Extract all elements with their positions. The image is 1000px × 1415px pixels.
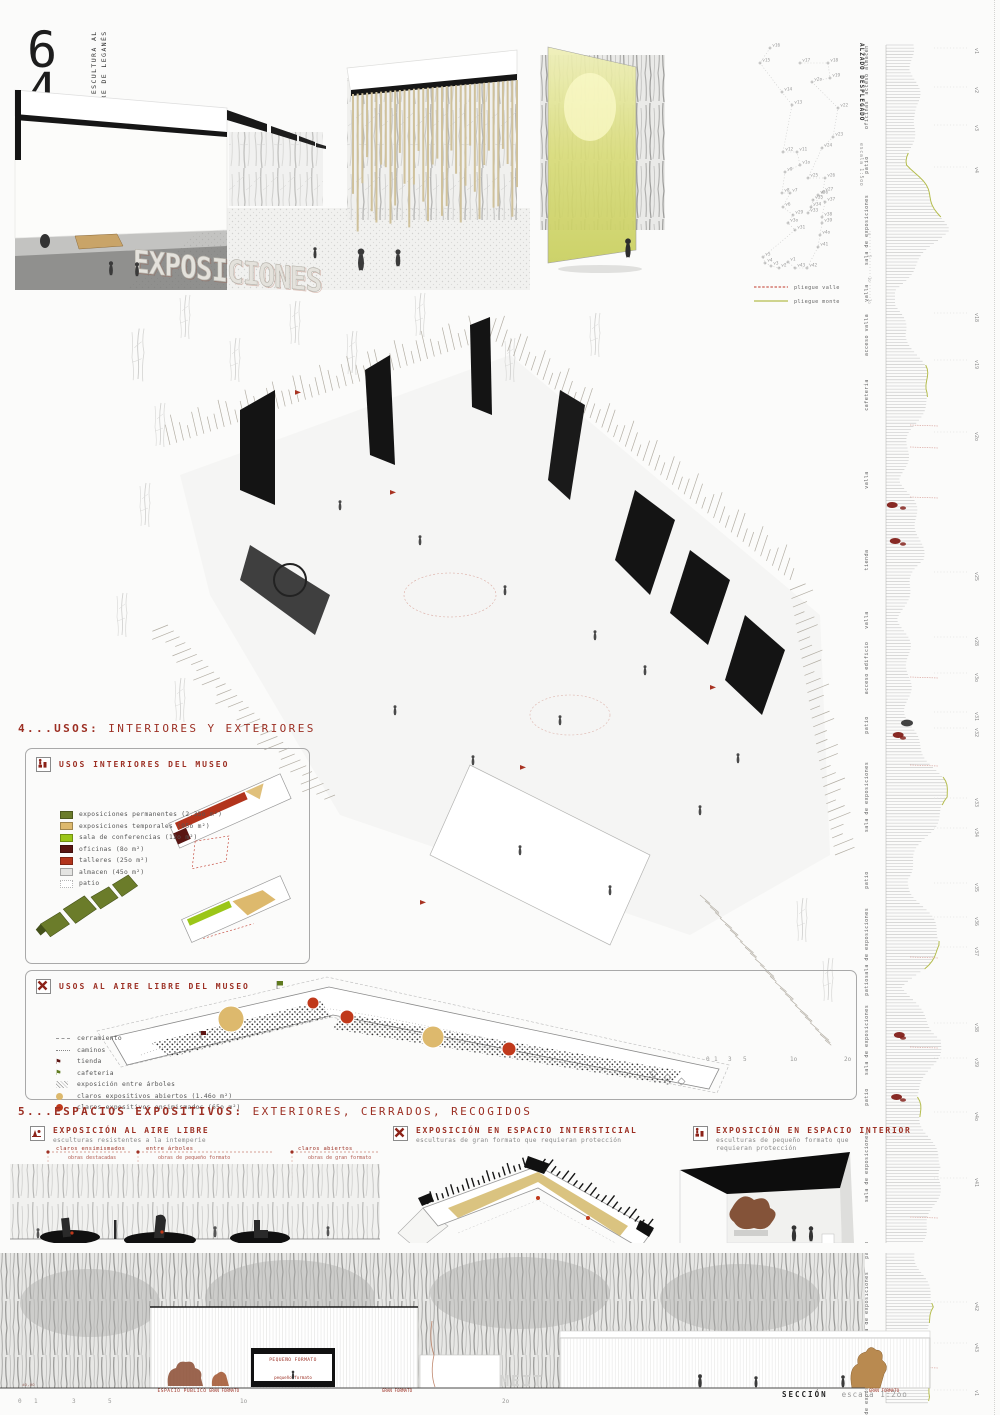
sub3-title: EXPOSICIÓN EN ESPACIO INTERIOR <box>716 1126 912 1135</box>
scale-number: 2o <box>502 1398 509 1405</box>
sculpture <box>40 234 50 248</box>
portal-slab <box>227 110 267 132</box>
vertex-label: v2 <box>781 262 787 268</box>
interior-uses-box: USOS INTERIORES DEL MUSEO exposiciones p… <box>25 748 310 964</box>
vertex-ref-label: v2 <box>973 87 979 93</box>
legend-label: tienda <box>77 1058 102 1065</box>
section4-heading-rest: INTERIORES Y EXTERIORES <box>108 722 316 735</box>
legend-label: cerramiento <box>77 1035 122 1042</box>
elevation-mark: ±o,oo <box>22 1382 35 1387</box>
claro-abierto <box>422 1026 444 1048</box>
color-chip <box>60 880 73 888</box>
elevation-segment-label: patio <box>864 871 870 889</box>
vertex-ref-label: v4 <box>973 167 979 173</box>
color-chip <box>60 845 73 853</box>
graphic-scale-label: 1o <box>867 277 872 282</box>
vertex-ref-label: v3o <box>973 673 979 682</box>
legend-label: exposición entre árboles <box>77 1081 175 1088</box>
vertex-label: v41 <box>820 241 828 247</box>
claro-abierto <box>218 1006 244 1032</box>
legend-item: exposiciones permanentes (2.35o m²) <box>60 809 222 821</box>
annotation-title: entre árboles <box>146 1145 193 1152</box>
scale-number: 5 <box>108 1398 112 1405</box>
vertex-ref-label: v4o <box>973 1112 979 1121</box>
section-caption-label: SECCIÓN <box>782 1390 828 1399</box>
elevation-segment-label: acceso almacén <box>863 45 870 94</box>
person-figure <box>395 249 400 266</box>
vertex-ref-label: v34 <box>973 828 979 837</box>
person-figure <box>135 262 139 276</box>
fold-vertex-diagram: v16v15v14v13v12v11v1ov9v8v7v6v29v3ov31v5… <box>748 35 853 315</box>
vertex-label: v1 <box>790 256 796 262</box>
person-figure <box>841 1375 845 1387</box>
legend-label: claros expositivos abiertos (1.46o m²) <box>77 1093 232 1100</box>
bottom-section-elevation: MEIT ±o,oo ESPACIO PÚBLICO GRAN FORMATO … <box>0 1243 1000 1395</box>
sub1-title: EXPOSICIÓN AL AIRE LIBRE <box>53 1126 209 1135</box>
vertex-ref-label: v32 <box>973 728 979 737</box>
person-figure <box>313 247 316 258</box>
open-air-uses-header: USOS AL AIRE LIBRE DEL MUSEO <box>36 979 250 994</box>
legend-item: ⚑cafeteria <box>56 1068 241 1080</box>
bottom-scalebar: 0 1 3 5 1o 2o <box>18 1398 538 1408</box>
legend-label: cafeteria <box>77 1070 114 1077</box>
vertex-label: v22 <box>840 102 848 108</box>
vertex-label: v3 <box>773 260 779 266</box>
color-chip <box>60 857 73 865</box>
vertex-label: v25 <box>810 172 818 178</box>
interior-uses-legend: exposiciones permanentes (2.35o m²) expo… <box>60 809 222 890</box>
vertex-ref-label: v37 <box>973 947 979 956</box>
scale-number: 1o <box>240 1398 247 1405</box>
legend-label: patio <box>79 880 99 887</box>
elevation-segment-label: acceso edificio <box>864 642 870 695</box>
crop-mark-line <box>994 0 995 1415</box>
open-air-uses-box: USOS AL AIRE LIBRE DEL MUSEO cerramiento… <box>25 970 857 1100</box>
elevation-segment-label: oficinas <box>864 101 870 129</box>
legend-label: talleres (25o m²) <box>79 857 149 864</box>
vertex-label: v34 <box>813 201 821 207</box>
vertex-label: v9 <box>787 166 793 172</box>
person-figure <box>519 845 522 855</box>
legend-label: oficinas (8o m²) <box>79 846 144 853</box>
vertex-label: v31 <box>797 224 805 230</box>
color-chip <box>60 811 73 819</box>
claro-ensimismado <box>340 1010 354 1024</box>
legend-label: almacen (45o m²) <box>79 869 144 876</box>
elevation-segment-label: valla <box>864 611 870 629</box>
vertex-ref-label: v2o <box>973 432 979 441</box>
person-figure <box>472 755 475 765</box>
section5-heading: 5...ESPACIOS EXPOSITIVOS: EXTERIORES, CE… <box>18 1105 532 1118</box>
pedestal <box>734 1230 768 1236</box>
elevation-segment-label: valla <box>864 284 870 302</box>
person-figure <box>625 238 631 257</box>
legend-item: ⚑tienda <box>56 1056 241 1068</box>
vertex-label: v35 <box>815 194 823 200</box>
pequeno-formato-label: PEQUEÑO FORMATO <box>269 1356 317 1363</box>
person-figure <box>754 1376 757 1387</box>
signage-text: MEIT <box>500 1372 544 1390</box>
scale-number: 0 <box>18 1398 22 1405</box>
gallery-box-frame <box>251 1348 335 1387</box>
section5-heading-rest: EXTERIORES, CERRADOS, RECOGIDOS <box>253 1105 533 1118</box>
vertex-label: v37 <box>827 196 835 202</box>
vertex-label: v6 <box>785 201 791 207</box>
trees-pictogram-icon <box>30 1126 45 1141</box>
elevation-labels: acceso almacénoficinaspatiosala de expos… <box>863 45 979 1415</box>
legend-item: claros expositivos abiertos (1.46o m²) <box>56 1091 241 1103</box>
scale-number: 3 <box>72 1398 76 1405</box>
elevation-segment-label: sala de exposiciones <box>864 195 870 265</box>
person-figure <box>594 630 597 640</box>
legend-item: sala de conferencias (12o m²) <box>60 832 222 844</box>
person-figure <box>213 1226 216 1237</box>
cafeteria-flag-icon: ⚑ <box>56 1069 61 1077</box>
glass-highlight <box>564 73 616 141</box>
person-figure <box>698 1374 702 1387</box>
legend-item: exposiciones temporales (95o m²) <box>60 821 222 833</box>
vertex-label: v5 <box>765 251 771 257</box>
vertex-label: v15 <box>762 57 770 63</box>
section-caption-scale: escala 1:2oo <box>842 1390 908 1399</box>
vertex-label: v4 <box>767 257 773 263</box>
claro-ensimismado <box>502 1042 516 1056</box>
vertex-ref-label: v19 <box>973 360 979 369</box>
vertex-label: v39 <box>824 217 832 223</box>
elevation-segment-label: patio <box>864 716 870 734</box>
glass-pane-rendering <box>540 45 665 290</box>
vertex-ref-label: v25 <box>973 572 979 581</box>
annotation-sub: obras de pequeño formato <box>158 1155 230 1161</box>
vertex-ref-label: v3 <box>973 125 979 131</box>
canopy-edge <box>15 90 21 160</box>
legend-item: oficinas (8o m²) <box>60 844 222 856</box>
tienda-flag-icon: ⚑ <box>56 1058 61 1066</box>
vertex-label: v38 <box>824 211 832 217</box>
claro-abierto-icon <box>56 1093 63 1100</box>
person-figure <box>809 1226 814 1241</box>
red-marker <box>586 1216 590 1220</box>
person-figure <box>504 585 507 595</box>
vertex-ref-label: v38 <box>973 1023 979 1032</box>
section4-heading: 4...USOS: INTERIORES Y EXTERIORES <box>18 722 316 735</box>
red-marker <box>160 1230 163 1233</box>
elevation-segment-label: acceso valla <box>864 314 870 356</box>
vertex-label: v13 <box>794 99 802 105</box>
elevation-segment-label: sala de exposiciones <box>864 908 870 978</box>
vertex-label: v2o <box>814 76 822 82</box>
open-air-uses-title: USOS AL AIRE LIBRE DEL MUSEO <box>59 982 250 991</box>
vertex-ref-label: v18 <box>973 313 979 322</box>
section-caption: SECCIÓNescala 1:2oo <box>782 1390 908 1399</box>
vertex-label: v14 <box>784 86 792 92</box>
person-figure <box>394 705 397 715</box>
vertex-ref-label: v31 <box>973 712 979 721</box>
vertex-label: v19 <box>832 72 840 78</box>
annotation-sub: obras de gran formato <box>308 1155 371 1161</box>
legend-label: exposiciones permanentes (2.35o m²) <box>79 811 222 818</box>
elevation-band <box>886 45 949 1415</box>
red-marker <box>70 1231 73 1234</box>
people-figures <box>625 238 631 257</box>
section4-heading-bold: 4...USOS: <box>18 722 99 735</box>
vertex-ref-label: v1 <box>973 48 979 54</box>
vertex-label: v26 <box>827 172 835 178</box>
vertex-label: v29 <box>795 209 803 215</box>
vertex-label: v42 <box>809 262 817 268</box>
sky <box>0 1243 1000 1253</box>
vertex-label: v23 <box>835 131 843 137</box>
gran-formato-label: GRAN FORMATO <box>209 1388 240 1393</box>
interior-uses-title: USOS INTERIORES DEL MUSEO <box>59 760 229 769</box>
legend-item: talleres (25o m²) <box>60 855 222 867</box>
unfolded-elevation-strip: ALZADO DESPLEGADO escala 1:5oo o51o2o ac… <box>852 35 1000 1415</box>
color-chip <box>60 822 73 830</box>
sub2-title: EXPOSICIÓN EN ESPACIO INTERSTICIAL <box>416 1126 638 1135</box>
vertex-ref-label: v33 <box>973 798 979 807</box>
legend-label: exposiciones temporales (95o m²) <box>79 823 210 830</box>
vertex-label: v33 <box>810 207 818 213</box>
espacio-publico-label: ESPACIO PÚBLICO <box>158 1387 207 1394</box>
vertex-label: v7 <box>792 187 798 193</box>
vertex-label: v4o <box>822 229 830 235</box>
vertex-label: v11 <box>799 146 807 152</box>
person-figure <box>699 805 702 815</box>
vertex-label: v27 <box>825 186 833 192</box>
vertex-label: v24 <box>824 142 832 148</box>
sculpture-pictogram-icon <box>36 757 51 772</box>
person-figure <box>644 665 647 675</box>
legend-item: exposición entre árboles <box>56 1079 241 1091</box>
red-marker <box>536 1196 540 1200</box>
vertex-ref-label: v36 <box>973 917 979 926</box>
elevation-segment-label: sala de exposiciones <box>864 1005 870 1075</box>
vertex-ref-label: v41 <box>973 1178 979 1187</box>
elevation-segment-label: patio <box>864 156 870 174</box>
hero-perspective-rendering: EXPOSICIONES EXPOSICIONES <box>15 40 530 290</box>
vertex-label: v8 <box>784 187 790 193</box>
legend-item: patio <box>60 878 222 890</box>
person-figure <box>327 1226 330 1236</box>
claro-ensimismado <box>307 997 319 1009</box>
legend-item: cerramiento <box>56 1033 241 1045</box>
vertex-label: v1o <box>802 159 810 165</box>
person-figure <box>292 1371 295 1379</box>
vertex-label: v3o <box>790 217 798 223</box>
annotation-title: claros abiertos <box>298 1146 353 1152</box>
interior-uses-header: USOS INTERIORES DEL MUSEO <box>36 757 229 772</box>
vertex-label: v18 <box>830 57 838 63</box>
legend-item: caminos <box>56 1045 241 1057</box>
color-chip <box>60 834 73 842</box>
elevation-segment-label: cafetería <box>863 379 870 411</box>
sculpture-pictogram-icon <box>693 1126 708 1141</box>
legend-label: sala de conferencias (12o m²) <box>79 834 198 841</box>
color-chip <box>60 868 73 876</box>
elevation-segment-label: valla <box>864 471 870 489</box>
vertex-label: v17 <box>802 57 810 63</box>
person-figure <box>559 715 562 725</box>
gran-formato-label: GRAN FORMATO <box>382 1388 413 1393</box>
person-figure <box>792 1225 797 1241</box>
person-figure <box>419 535 422 545</box>
ceiling-plane <box>680 1152 850 1194</box>
vertex-ref-label: v28 <box>973 637 979 646</box>
person-figure <box>737 753 740 763</box>
presentation-board: 6 4 3 MUSEO DE ESCULTURA AL AIRE LIBRE D… <box>0 0 1000 1415</box>
legend-label: caminos <box>77 1047 106 1054</box>
open-air-legend: cerramiento caminos ⚑tienda ⚑cafeteria e… <box>56 1033 241 1114</box>
section5-heading-bold: 5...ESPACIOS EXPOSITIVOS: <box>18 1105 244 1118</box>
elevation-segment-label: patio <box>864 978 870 996</box>
x-pictogram-icon <box>36 979 51 994</box>
gallery-wall <box>15 118 227 238</box>
vertex-ref-label: v35 <box>973 883 979 892</box>
elevation-segment-label: patio <box>864 1088 870 1106</box>
vertex-ref-label: v39 <box>973 1058 979 1067</box>
elevation-segment-label: sala de exposiciones <box>864 762 870 832</box>
vertex-label: v16 <box>772 42 780 48</box>
roof-slab-right <box>560 1331 930 1338</box>
person-figure <box>358 248 365 270</box>
annotation-title: claros ensimismados <box>56 1146 125 1152</box>
legend-item: almacen (45o m²) <box>60 867 222 879</box>
scale-number: 1 <box>34 1398 38 1405</box>
person-figure <box>109 261 113 275</box>
annotation-sub: obras destacadas <box>68 1155 116 1161</box>
person-figure <box>37 1228 40 1238</box>
vertex-network: v16v15v14v13v12v11v1ov9v8v7v6v29v3ov31v5… <box>758 42 848 269</box>
elevation-segment-label: tienda <box>864 549 870 570</box>
vertex-label: v43 <box>797 262 805 268</box>
person-figure <box>339 500 342 510</box>
person-figure <box>609 885 612 895</box>
ground-shadow <box>558 265 642 273</box>
legend-label: pliegue valle <box>794 285 840 291</box>
vertex-label: v12 <box>785 146 793 152</box>
